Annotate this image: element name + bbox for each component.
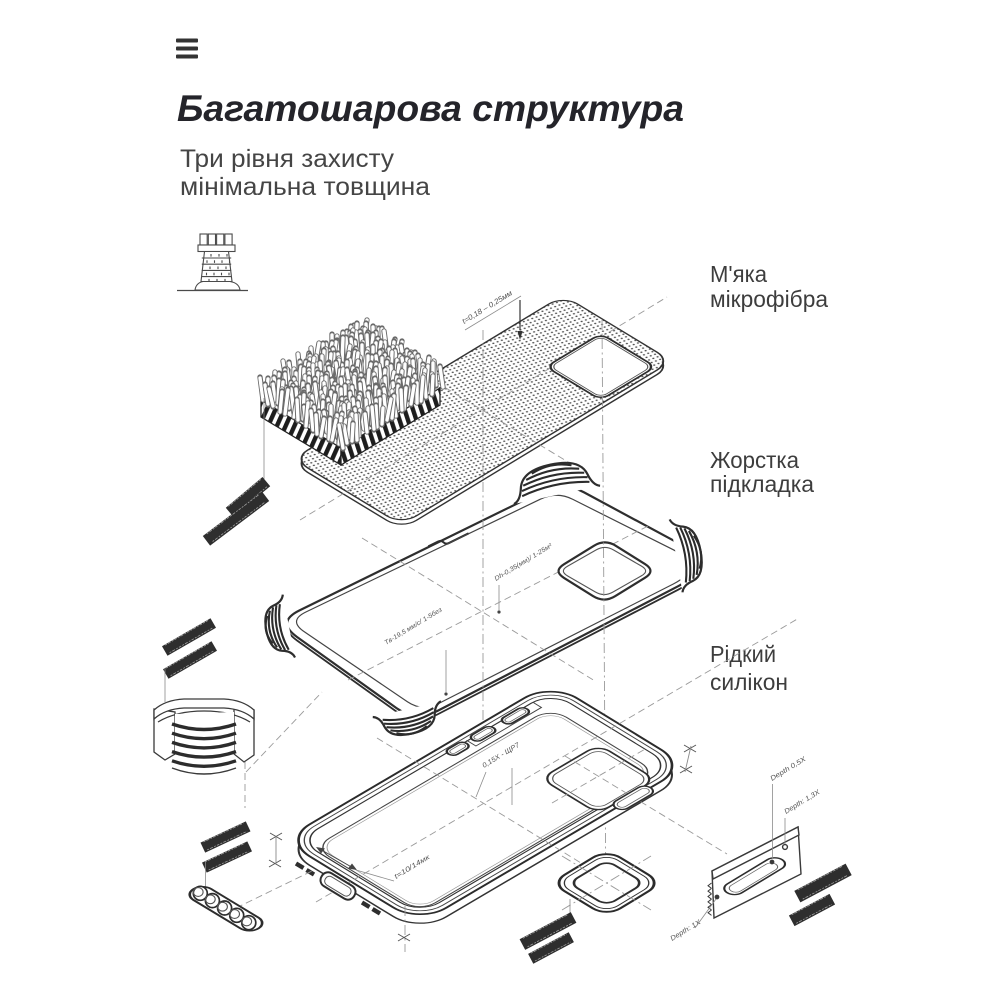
svg-text:мінімальна товщина: мінімальна товщина [180,173,430,201]
svg-text:підкладка: підкладка [710,471,814,497]
svg-text:силікон: силікон [710,669,788,695]
svg-text:Багатошарова структура: Багатошарова структура [177,88,684,129]
svg-text:Три рівня захисту: Три рівня захисту [180,145,395,173]
svg-text:Рідкий: Рідкий [710,641,776,667]
svg-text:М'яка: М'яка [710,261,767,287]
svg-text:Жорстка: Жорстка [710,447,799,473]
svg-text:мікрофібра: мікрофібра [710,286,828,312]
